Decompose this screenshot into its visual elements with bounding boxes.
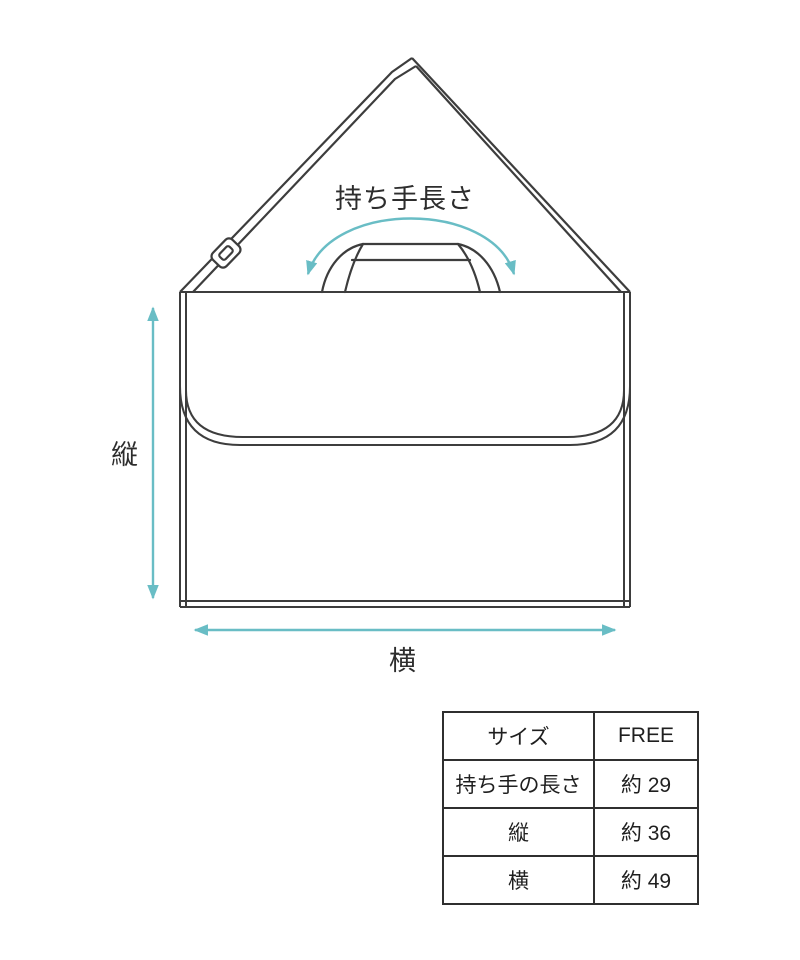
size-table: サイズ FREE 持ち手の長さ 約 29 縦 約 36 横 約 49 — [442, 711, 699, 905]
size-table-header-value: FREE — [594, 712, 698, 760]
size-table-header-label: サイズ — [443, 712, 594, 760]
shoulder-strap — [180, 58, 630, 292]
table-row: 横 約 49 — [443, 856, 698, 904]
table-row: 縦 約 36 — [443, 808, 698, 856]
bag-body — [180, 292, 630, 607]
handle-length-arrow — [308, 219, 514, 275]
bag-handle — [322, 244, 500, 292]
row-width-label: 横 — [443, 856, 594, 904]
size-table-header-row: サイズ FREE — [443, 712, 698, 760]
row-handle-length-label: 持ち手の長さ — [443, 760, 594, 808]
row-height-label: 縦 — [443, 808, 594, 856]
row-handle-length-value: 約 29 — [594, 760, 698, 808]
handle-length-label: 持ち手長さ — [335, 184, 475, 214]
page: 持ち手長さ 縦 横 サイズ FREE 持ち手の長さ 約 29 縦 約 36 横 … — [0, 0, 800, 960]
strap-buckle-icon — [209, 236, 242, 269]
bag-flap-edge — [180, 386, 630, 445]
height-label: 縦 — [111, 440, 139, 470]
row-width-value: 約 49 — [594, 856, 698, 904]
row-height-value: 約 36 — [594, 808, 698, 856]
table-row: 持ち手の長さ 約 29 — [443, 760, 698, 808]
width-label: 横 — [389, 646, 417, 676]
